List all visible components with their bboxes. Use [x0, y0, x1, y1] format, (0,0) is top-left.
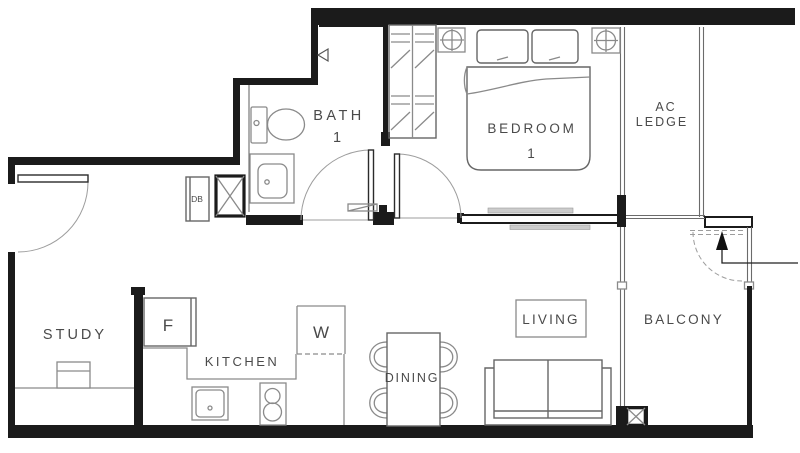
balcony-access-panel: [690, 231, 744, 282]
balcony-sliding-door: [621, 227, 625, 406]
bedroom-door-swing-arc: [397, 154, 461, 218]
room-label-ledge: LEDGE: [636, 115, 688, 129]
fixture-cross: [440, 29, 464, 51]
ac-ledge-divider: [700, 27, 704, 217]
room-label-dining: DINING: [385, 371, 440, 385]
toilet-flush-button: [254, 121, 259, 126]
floor-plan-page: STUDY KITCHEN DINING LIVING BALCONY BEDR…: [0, 0, 800, 453]
wall-foyer-top: [8, 157, 240, 165]
entrance-door-leaf: [18, 175, 88, 182]
entry-arrow-head: [716, 231, 728, 250]
wall-left-lower: [8, 252, 15, 438]
study-desk: [57, 362, 90, 388]
wall-study-partition: [134, 287, 143, 427]
toilet-bowl: [268, 109, 305, 140]
balcony-east-parapet: [747, 286, 752, 427]
appliance-label-db: DB: [191, 194, 203, 204]
balcony-north-line: [626, 216, 705, 219]
wall-top: [311, 8, 795, 25]
room-label-kitchen: KITCHEN: [205, 354, 280, 369]
entrance-door: [18, 175, 88, 252]
room-label-balcony: BALCONY: [644, 312, 724, 327]
wall-shower-alcove-top: [319, 23, 383, 27]
study-furniture: [15, 362, 134, 388]
dining-chair-2: [370, 388, 387, 418]
room-label-living: LIVING: [522, 312, 579, 327]
appliance-label-fridge: F: [163, 316, 173, 335]
wall-study-partition-cap: [131, 287, 145, 295]
dining-chair-1: [370, 342, 387, 372]
floor-plan: STUDY KITCHEN DINING LIVING BALCONY BEDR…: [0, 0, 800, 453]
balcony-panel-dashed-line: [690, 231, 744, 235]
room-label-bedroom-number: 1: [527, 146, 535, 161]
entry-arrow-line: [722, 250, 798, 263]
balcony-panel-dashed-arc: [693, 232, 742, 281]
bath-door-swing-arc: [301, 150, 371, 220]
wall-bedroom-south-window: [461, 215, 618, 223]
hob-burner-1: [265, 389, 280, 404]
kitchen-sink-drain: [208, 406, 212, 410]
wall-bath-bedroom-divider: [383, 25, 388, 146]
wall-left-upper: [8, 157, 15, 184]
window-ledge-inner: [488, 208, 573, 213]
bath-door-leaf: [369, 150, 374, 220]
bedroom-door: [395, 154, 462, 218]
dining-chair-4: [440, 388, 457, 418]
kitchen-sink-basin: [196, 390, 224, 417]
window-ledge-outer: [510, 225, 590, 230]
appliance-label-washer: W: [313, 323, 329, 342]
balcony-elements: [627, 231, 798, 425]
entrance-door-swing-arc: [18, 182, 88, 252]
bedroom-door-leaf: [395, 154, 400, 218]
balcony-east-upper-line: [748, 227, 752, 286]
wall-balcony-northeast: [705, 217, 752, 227]
wall-door-jamb-top: [379, 205, 387, 213]
vanity-basin: [258, 164, 287, 198]
kitchen-sink: [192, 387, 228, 420]
toilet-cistern: [251, 107, 267, 143]
vanity-drain: [265, 180, 269, 184]
ceiling-fixture-symbol-right: [592, 28, 620, 53]
sliding-door-joint: [618, 282, 627, 289]
shower-symbol: [318, 49, 328, 61]
wall-bath-south: [246, 215, 303, 225]
bath-door: [301, 150, 374, 220]
room-label-study: STUDY: [43, 327, 107, 343]
ac-ledge-west-line: [621, 27, 625, 195]
wall-step-horizontal: [233, 78, 318, 85]
room-label-bath: BATH: [313, 108, 365, 124]
dining-chair-3: [440, 342, 457, 372]
fixture-cross: [594, 29, 618, 52]
ceiling-fixture-symbol-left: [438, 28, 465, 52]
wall-step-vertical-1: [311, 8, 318, 85]
hob-burner-2: [264, 403, 282, 421]
room-label-ac: AC: [655, 100, 676, 114]
wall-door-jamb: [373, 212, 394, 225]
wall-step-vertical-2: [233, 78, 240, 165]
room-label-bath-number: 1: [333, 130, 341, 146]
room-label-bedroom: BEDROOM: [487, 121, 576, 136]
